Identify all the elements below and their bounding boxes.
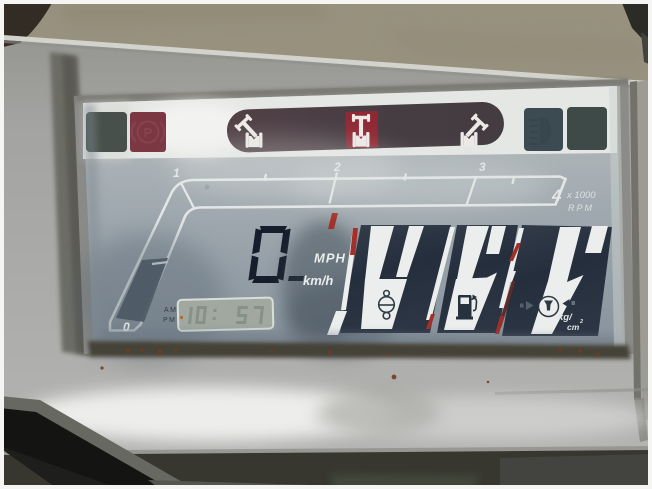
svg-text:P: P (144, 125, 153, 140)
svg-text:km/h: km/h (303, 273, 333, 288)
svg-text:x 1000: x 1000 (566, 190, 596, 201)
svg-text:cm: cm (567, 322, 580, 332)
svg-text:4: 4 (551, 186, 562, 205)
svg-text:PM: PM (163, 317, 177, 324)
svg-text:AM: AM (164, 307, 178, 314)
svg-text:MPH: MPH (314, 251, 346, 266)
svg-text:RPM: RPM (568, 203, 594, 213)
svg-text:2: 2 (579, 319, 583, 325)
